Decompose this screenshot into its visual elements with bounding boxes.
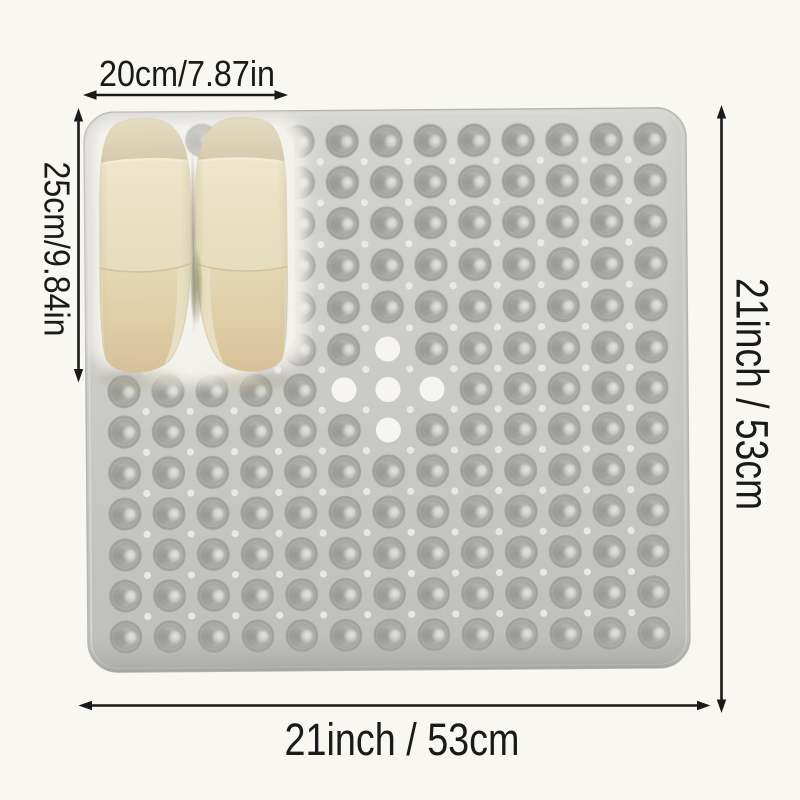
- svg-text:21inch / 53cm: 21inch / 53cm: [727, 278, 778, 510]
- svg-text:25cm/9.84in: 25cm/9.84in: [37, 162, 78, 337]
- svg-text:21inch / 53cm: 21inch / 53cm: [285, 714, 520, 765]
- svg-text:20cm/7.87in: 20cm/7.87in: [99, 53, 275, 94]
